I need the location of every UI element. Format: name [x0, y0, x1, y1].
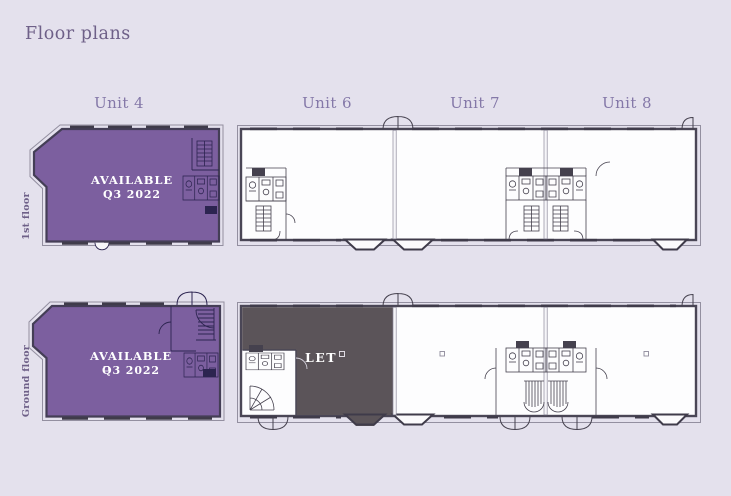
page-title: Floor plans: [25, 24, 131, 44]
unit4-ground-status-line1: AVAILABLE: [90, 349, 172, 364]
units-6-7-8-first-floor-plan: [238, 117, 701, 250]
floor-plans-page: Floor plans Unit 4 Unit 6 Unit 7 Unit 8 …: [0, 0, 731, 496]
ground-floor-top-double-door: [383, 294, 413, 307]
unit7-unit8-divider-ground: [544, 307, 547, 415]
unit4-ground-status: AVAILABLE Q3 2022: [90, 349, 172, 378]
first-floor-top-double-door: [383, 117, 413, 130]
unit4-label: Unit 4: [94, 94, 144, 112]
unit4-first-status-line1: AVAILABLE: [91, 173, 173, 188]
unit7-label: Unit 7: [450, 94, 500, 112]
unit8-label: Unit 8: [602, 94, 652, 112]
unit8-ground-top-door: [682, 295, 693, 307]
unit4-ground-status-line2: Q3 2022: [90, 364, 172, 379]
unit4-ground-entrance-doors: [177, 292, 207, 305]
unit4-first-status-line2: Q3 2022: [91, 188, 173, 203]
floor-plans-drawing: [0, 0, 731, 496]
unit7-unit8-divider: [544, 130, 547, 239]
unit6-unit7-divider: [393, 130, 396, 239]
ground-floor-label: Ground floor: [21, 342, 32, 420]
unit4-first-door-arc: [95, 243, 109, 250]
unit4-first-status: AVAILABLE Q3 2022: [91, 173, 173, 202]
unit6-ground-status: LET: [305, 350, 337, 365]
first-floor-label: 1st floor: [21, 185, 32, 247]
unit6-label: Unit 6: [302, 94, 352, 112]
unit6-unit7-divider-ground: [393, 307, 396, 415]
unit8-first-top-door: [682, 118, 693, 130]
